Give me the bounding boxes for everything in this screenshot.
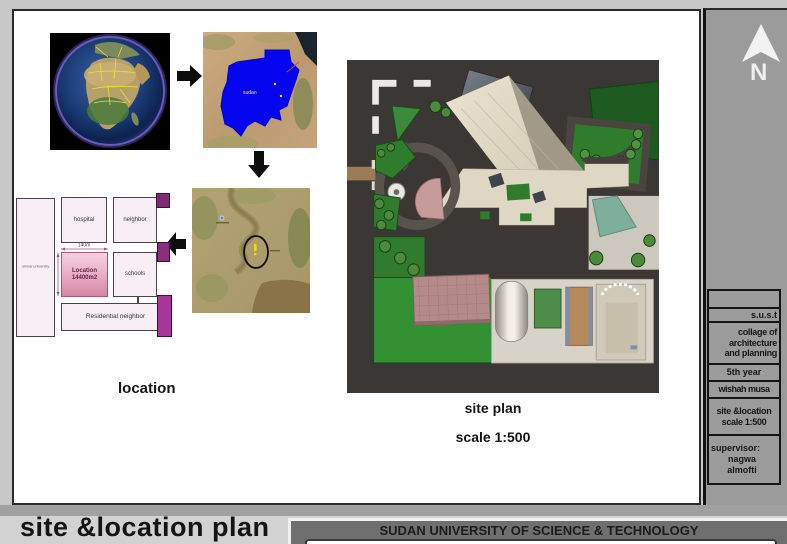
university-panel: SUDAN UNIVERSITY OF SCIENCE & TECHNOLOGY (288, 518, 787, 544)
north-arrow-icon: N (738, 22, 784, 82)
court-brown (566, 287, 593, 345)
location-caption: location (118, 380, 176, 397)
paved-plaza (413, 274, 491, 325)
title-row-student: wishah musa (709, 382, 779, 399)
magenta-accent-block (157, 295, 172, 337)
residential-label: Residential neighbor (86, 313, 145, 320)
courtyard-lawn (506, 183, 530, 200)
entrance-road (347, 167, 376, 181)
connector-line (137, 297, 139, 303)
schools-block: schools (113, 252, 157, 297)
supervisor-name: nagwa almofti (711, 454, 777, 476)
sheet-title: site &location plan (20, 512, 270, 543)
arrow-down-icon (247, 151, 271, 179)
map-pin-blue (220, 216, 224, 220)
sudan-label: sudan (243, 90, 257, 96)
title-table: s.u.s.t collage of architecture and plan… (707, 289, 781, 485)
site-marker (254, 244, 257, 251)
title-row-drawing: site &location scale 1:500 (709, 399, 779, 436)
residential-neighbor-block: Residential neighbor (61, 303, 170, 331)
footer-text-box (305, 539, 777, 544)
arrow-right-icon (177, 64, 203, 88)
region-map-image (192, 188, 310, 313)
university-name: SUDAN UNIVERSITY OF SCIENCE & TECHNOLOGY (291, 523, 787, 538)
presentation-sheet: sudan sinnar university hosp (0, 0, 787, 544)
sudan-map-image: sudan (203, 32, 317, 148)
magenta-accent-block (156, 193, 170, 208)
site-plan-caption: site plan (393, 400, 593, 416)
supervisor-label: supervisor: (711, 443, 777, 454)
title-row-year: 5th year (709, 365, 779, 382)
height-dimension (54, 252, 61, 297)
scale-caption: scale 1:500 (393, 429, 593, 445)
title-row-sust: s.u.s.t (709, 309, 779, 323)
magenta-accent-block (157, 242, 170, 262)
title-row (709, 291, 779, 309)
north-letter: N (750, 59, 767, 82)
hospital-block: hospital (61, 197, 107, 243)
earth-globe-image (50, 33, 170, 150)
vault-building (495, 281, 527, 341)
site-location-block: Location 14400m2 (61, 252, 108, 297)
university-block: sinnar university (16, 198, 55, 337)
site-plan-render (347, 60, 659, 393)
court-green (534, 289, 561, 328)
neighbor-block: neighbor (113, 197, 157, 243)
hospital-label: hospital (74, 217, 95, 224)
university-label: sinnar university (22, 265, 49, 269)
width-dimension: 140m (60, 241, 109, 252)
title-row-supervisor: supervisor: nagwa almofti (709, 436, 779, 483)
width-dimension-label: 140m (78, 243, 91, 249)
title-row-college: collage of architecture and planning (709, 323, 779, 365)
neighbor-label: neighbor (123, 217, 146, 224)
schools-label: schools (125, 271, 145, 278)
